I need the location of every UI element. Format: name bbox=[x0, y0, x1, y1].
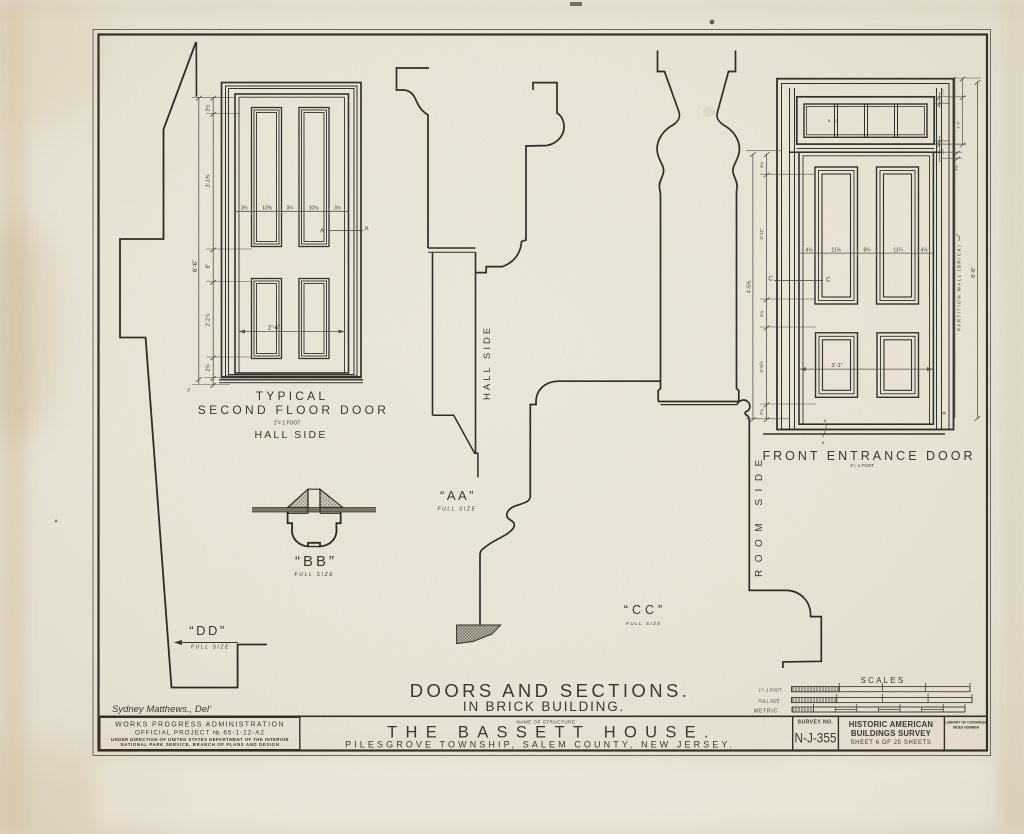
svg-text:3¼: 3¼ bbox=[287, 206, 295, 212]
svg-text:INDEX NUMBER: INDEX NUMBER bbox=[953, 726, 980, 730]
svg-text:SCALES: SCALES bbox=[861, 676, 906, 685]
svg-text:PILESGROVE TOWNSHIP, SALEM COU: PILESGROVE TOWNSHIP, SALEM COUNTY, NEW J… bbox=[345, 740, 735, 750]
svg-text:2½: 2½ bbox=[205, 104, 212, 112]
svg-text:1¼: 1¼ bbox=[940, 149, 945, 155]
svg-text:DOORS AND SECTIONS.: DOORS AND SECTIONS. bbox=[410, 680, 690, 701]
svg-text:4⅛: 4⅛ bbox=[806, 247, 814, 253]
svg-text:2⅝: 2⅝ bbox=[206, 364, 212, 372]
svg-text:IN BRICK BUILDING.: IN BRICK BUILDING. bbox=[463, 699, 625, 714]
svg-text:SECOND FLOOR DOOR: SECOND FLOOR DOOR bbox=[198, 403, 389, 417]
svg-text:METRIC: METRIC bbox=[754, 709, 778, 715]
svg-text:A: A bbox=[320, 229, 324, 235]
svg-text:FULL SIZE: FULL SIZE bbox=[437, 507, 476, 513]
svg-text:8”: 8” bbox=[206, 263, 212, 268]
svg-text:2’-6”: 2’-6” bbox=[268, 326, 280, 332]
svg-text:4¼: 4¼ bbox=[954, 165, 959, 171]
svg-text:8¾: 8¾ bbox=[864, 247, 872, 253]
svg-text:WORKS PROGRESS ADMINISTRATION: WORKS PROGRESS ADMINISTRATION bbox=[115, 722, 285, 729]
svg-text:FULL SIZE: FULL SIZE bbox=[191, 645, 230, 651]
svg-text:1”= 1 FOOT: 1”= 1 FOOT bbox=[758, 688, 781, 693]
svg-text:3’-1”: 3’-1” bbox=[831, 363, 842, 369]
svg-text:FULL SIZE: FULL SIZE bbox=[626, 621, 662, 626]
svg-text:¼: ¼ bbox=[186, 388, 191, 392]
svg-text:3’-1⅜: 3’-1⅜ bbox=[206, 174, 212, 187]
svg-text:FULL SIZE: FULL SIZE bbox=[758, 698, 779, 703]
svg-text:FRONT ENTRANCE DOOR: FRONT ENTRANCE DOOR bbox=[762, 449, 975, 463]
svg-text:NATIONAL PARK SERVICE, BRANCH: NATIONAL PARK SERVICE, BRANCH OF PLANS A… bbox=[121, 742, 280, 747]
svg-text:11¼: 11¼ bbox=[893, 247, 903, 253]
svg-text:Sydney Matthews., Del’: Sydney Matthews., Del’ bbox=[112, 704, 212, 715]
svg-text:HALL SIDE: HALL SIDE bbox=[254, 429, 327, 441]
svg-text:2’-11”: 2’-11” bbox=[759, 228, 764, 240]
svg-text:C: C bbox=[768, 277, 773, 283]
svg-text:HALL SIDE: HALL SIDE bbox=[482, 325, 493, 400]
svg-text:4¼: 4¼ bbox=[759, 162, 764, 169]
svg-text:C: C bbox=[826, 278, 831, 284]
svg-text:1’-2”: 1’-2” bbox=[956, 120, 961, 129]
svg-text:SURVEY NO.: SURVEY NO. bbox=[798, 720, 834, 726]
svg-text:2⅞: 2⅞ bbox=[940, 89, 945, 95]
svg-text:2’-2⅞: 2’-2⅞ bbox=[206, 313, 212, 326]
svg-text:4⅛: 4⅛ bbox=[921, 247, 929, 253]
svg-text:HISTORIC AMERICAN: HISTORIC AMERICAN bbox=[849, 720, 934, 729]
svg-text:PARTITION WALL (BRICK): PARTITION WALL (BRICK) bbox=[957, 244, 963, 331]
svg-text:LIBRARY OF CONGRESS: LIBRARY OF CONGRESS bbox=[946, 721, 988, 725]
svg-text:4’-5⅜: 4’-5⅜ bbox=[747, 280, 753, 293]
svg-text:ROOM SIDE: ROOM SIDE bbox=[754, 452, 765, 577]
svg-text:11⅛: 11⅛ bbox=[831, 247, 841, 253]
svg-text:10⅝: 10⅝ bbox=[262, 206, 273, 212]
svg-text:FULL SIZE: FULL SIZE bbox=[295, 572, 335, 578]
svg-text:1”= 1 FOOT: 1”= 1 FOOT bbox=[850, 463, 874, 468]
svg-text:7¼: 7¼ bbox=[759, 409, 764, 416]
svg-text:1¼: 1¼ bbox=[759, 311, 764, 318]
svg-text:2’-0⅞: 2’-0⅞ bbox=[759, 361, 764, 373]
svg-text:N-J-355: N-J-355 bbox=[795, 731, 837, 746]
svg-text:OFFICIAL PROJECT № 65-1-22-A2: OFFICIAL PROJECT № 65-1-22-A2 bbox=[135, 730, 265, 737]
svg-text:“CC”: “CC” bbox=[624, 603, 666, 617]
svg-text:“DD”: “DD” bbox=[189, 623, 226, 638]
svg-text:“AA”: “AA” bbox=[440, 488, 476, 503]
svg-text:TYPICAL: TYPICAL bbox=[256, 389, 328, 403]
svg-text:1”= 1 FOOT: 1”= 1 FOOT bbox=[274, 421, 301, 427]
svg-text:A: A bbox=[364, 227, 368, 233]
svg-text:6’-6”: 6’-6” bbox=[193, 260, 199, 272]
svg-text:10⅝: 10⅝ bbox=[309, 206, 320, 212]
svg-text:3½: 3½ bbox=[241, 205, 249, 212]
svg-text:SHEET 6 OF 25 SHEETS: SHEET 6 OF 25 SHEETS bbox=[851, 740, 932, 746]
svg-text:BUILDINGS SURVEY: BUILDINGS SURVEY bbox=[851, 729, 932, 738]
svg-text:“BB”: “BB” bbox=[295, 553, 337, 570]
svg-text:8’-8”: 8’-8” bbox=[971, 267, 977, 278]
svg-text:3½: 3½ bbox=[334, 205, 342, 212]
